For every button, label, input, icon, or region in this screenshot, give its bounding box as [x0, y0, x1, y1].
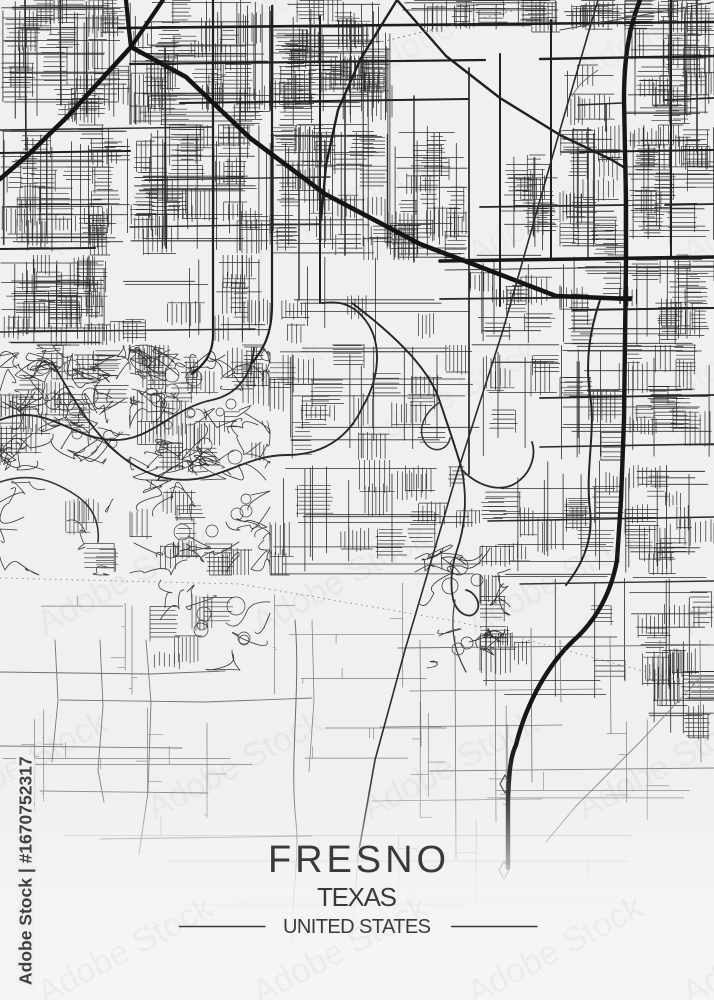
svg-text:TEXAS: TEXAS — [317, 882, 397, 912]
svg-text:FRESNO: FRESNO — [268, 839, 446, 881]
svg-text:UNITED STATES: UNITED STATES — [283, 916, 431, 938]
svg-text:Adobe Stock | #1670752317: Adobe Stock | #1670752317 — [16, 756, 36, 985]
